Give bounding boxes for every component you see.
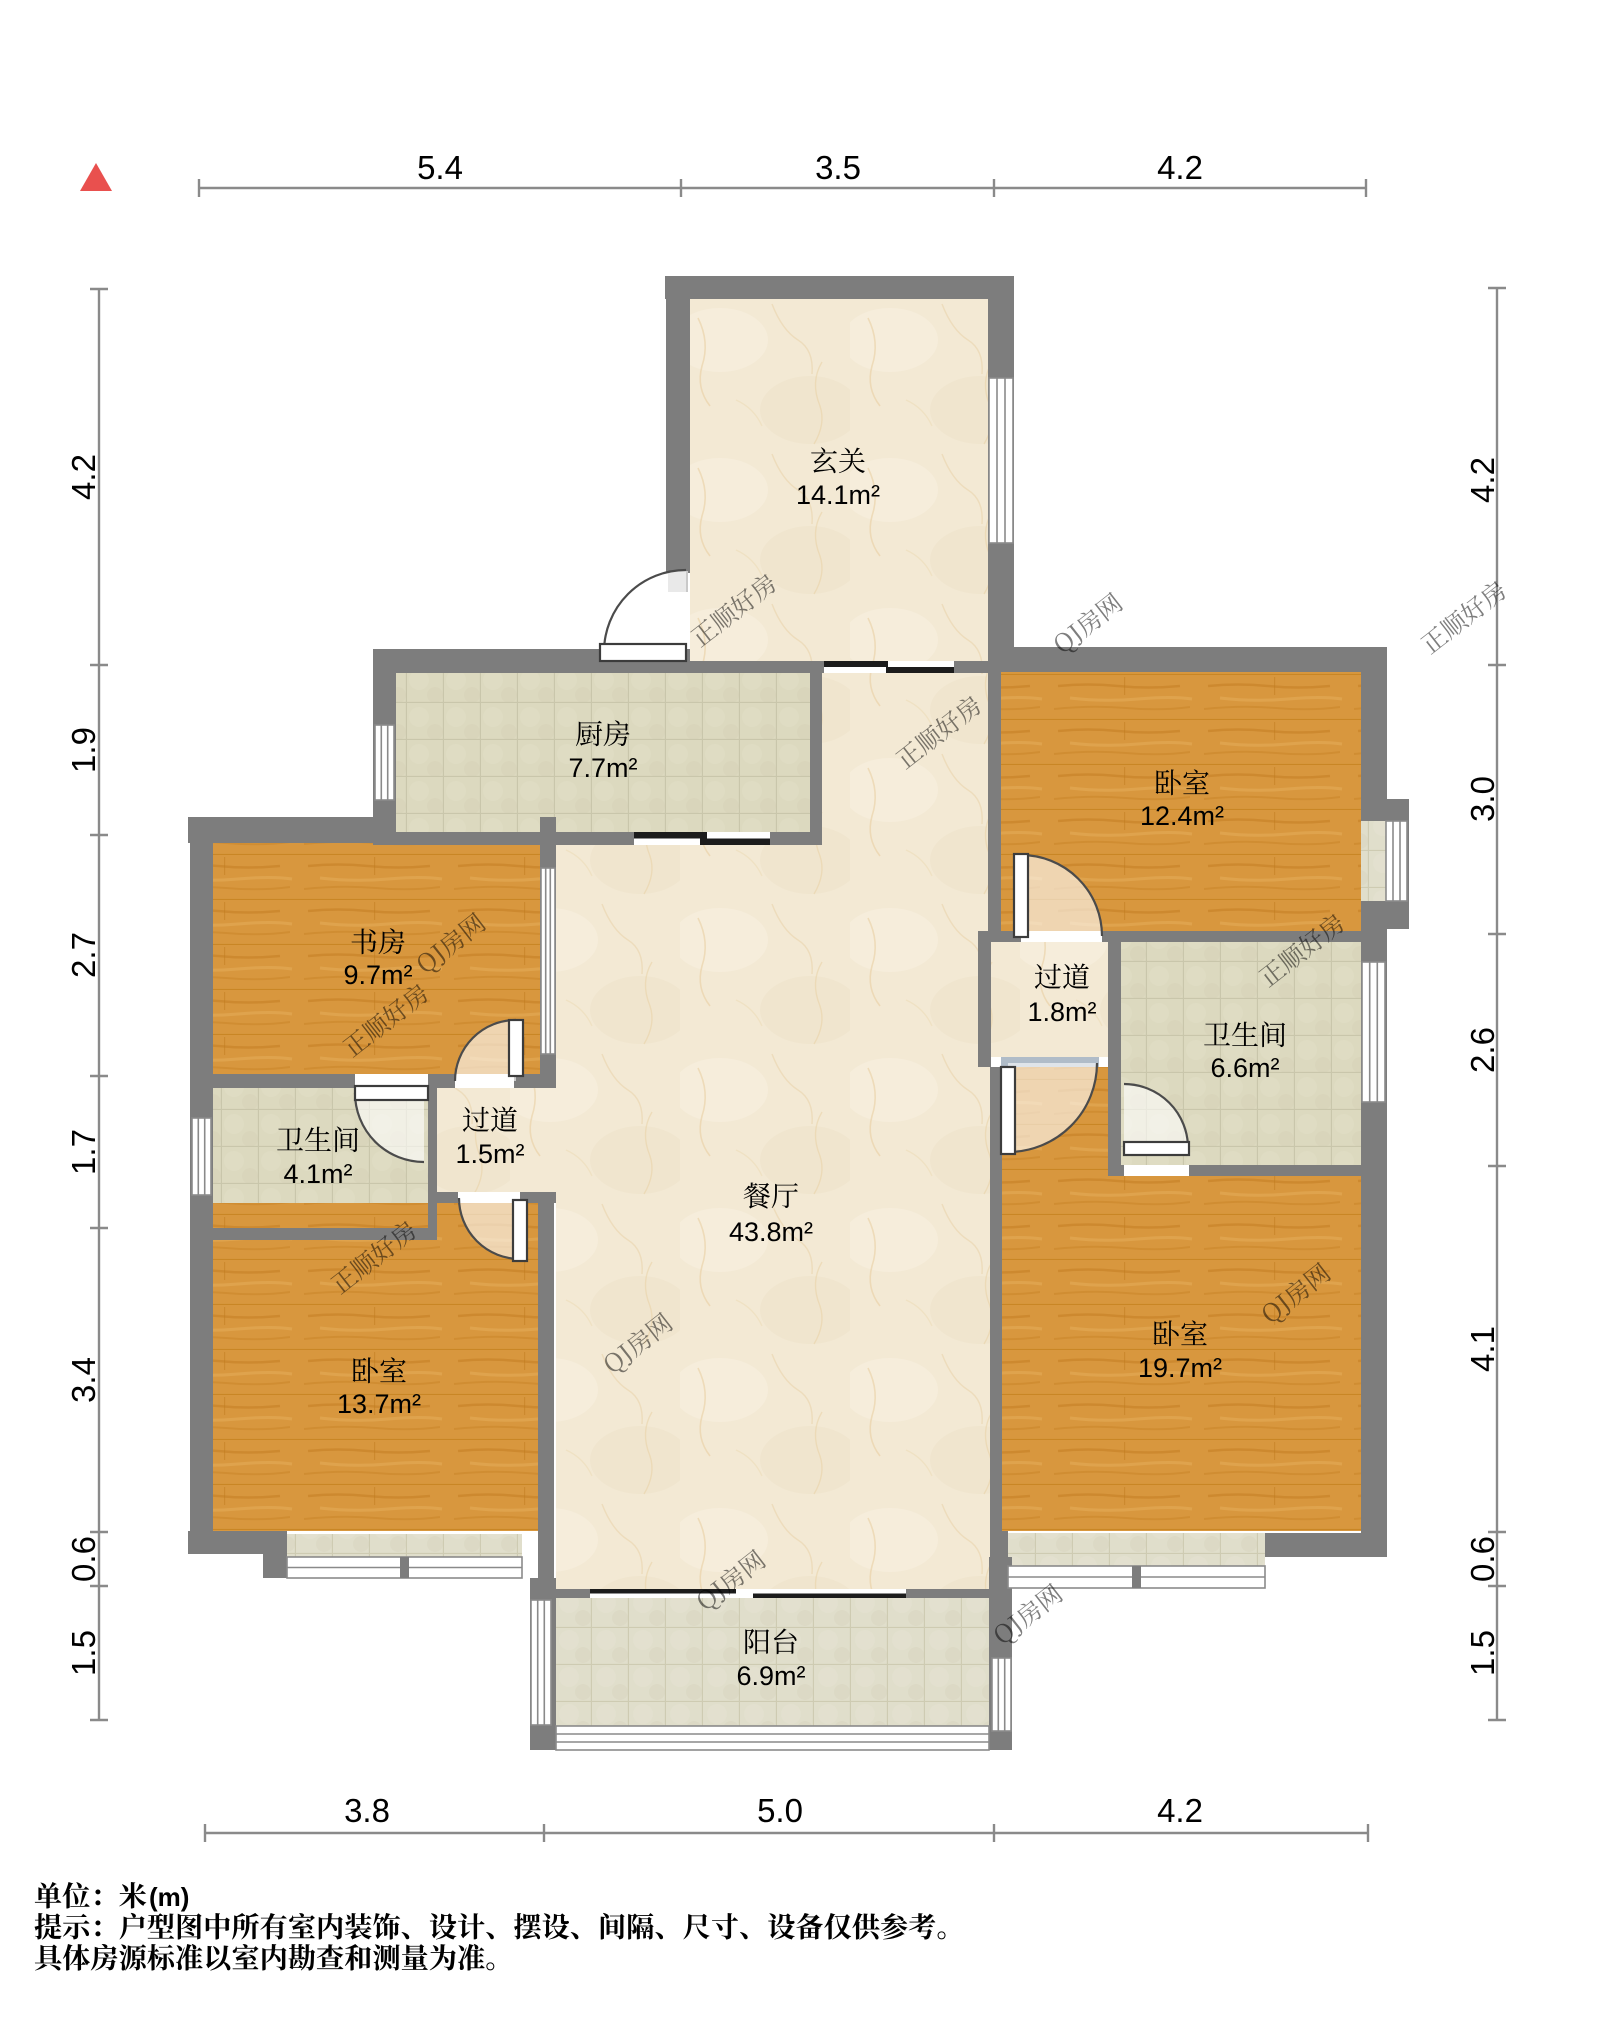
svg-text:5.0: 5.0 xyxy=(757,1792,803,1829)
svg-text:4.2: 4.2 xyxy=(1157,149,1203,186)
svg-text:6.9m²: 6.9m² xyxy=(736,1661,805,1691)
svg-text:2.6: 2.6 xyxy=(1464,1027,1501,1073)
svg-text:(m): (m) xyxy=(149,1882,189,1912)
svg-text:1.8m²: 1.8m² xyxy=(1027,997,1096,1027)
svg-text:4.1m²: 4.1m² xyxy=(283,1159,352,1189)
svg-text:12.4m²: 12.4m² xyxy=(1140,801,1224,831)
svg-text:0.6: 0.6 xyxy=(1464,1536,1501,1582)
svg-text:13.7m²: 13.7m² xyxy=(337,1389,421,1419)
svg-text:0.6: 0.6 xyxy=(65,1536,102,1582)
svg-text:4.1: 4.1 xyxy=(1464,1326,1501,1372)
svg-text:6.6m²: 6.6m² xyxy=(1210,1053,1279,1083)
svg-text:3.8: 3.8 xyxy=(344,1792,390,1829)
svg-text:3.5: 3.5 xyxy=(815,149,861,186)
svg-text:14.1m²: 14.1m² xyxy=(796,480,880,510)
svg-text:43.8m²: 43.8m² xyxy=(729,1217,813,1247)
svg-text:3.4: 3.4 xyxy=(65,1357,102,1403)
svg-text:2.7: 2.7 xyxy=(65,932,102,978)
svg-text:4.2: 4.2 xyxy=(1157,1792,1203,1829)
svg-text:4.2: 4.2 xyxy=(65,454,102,500)
svg-text:3.0: 3.0 xyxy=(1464,776,1501,822)
svg-text:1.9: 1.9 xyxy=(65,727,102,773)
svg-text:1.5: 1.5 xyxy=(1464,1630,1501,1676)
svg-text:1.7: 1.7 xyxy=(65,1129,102,1175)
svg-text:4.2: 4.2 xyxy=(1464,457,1501,503)
svg-text:5.4: 5.4 xyxy=(417,149,463,186)
svg-text:1.5: 1.5 xyxy=(65,1630,102,1676)
svg-text:9.7m²: 9.7m² xyxy=(343,960,412,990)
svg-text:19.7m²: 19.7m² xyxy=(1138,1353,1222,1383)
svg-text:7.7m²: 7.7m² xyxy=(568,753,637,783)
svg-text:1.5m²: 1.5m² xyxy=(455,1139,524,1169)
